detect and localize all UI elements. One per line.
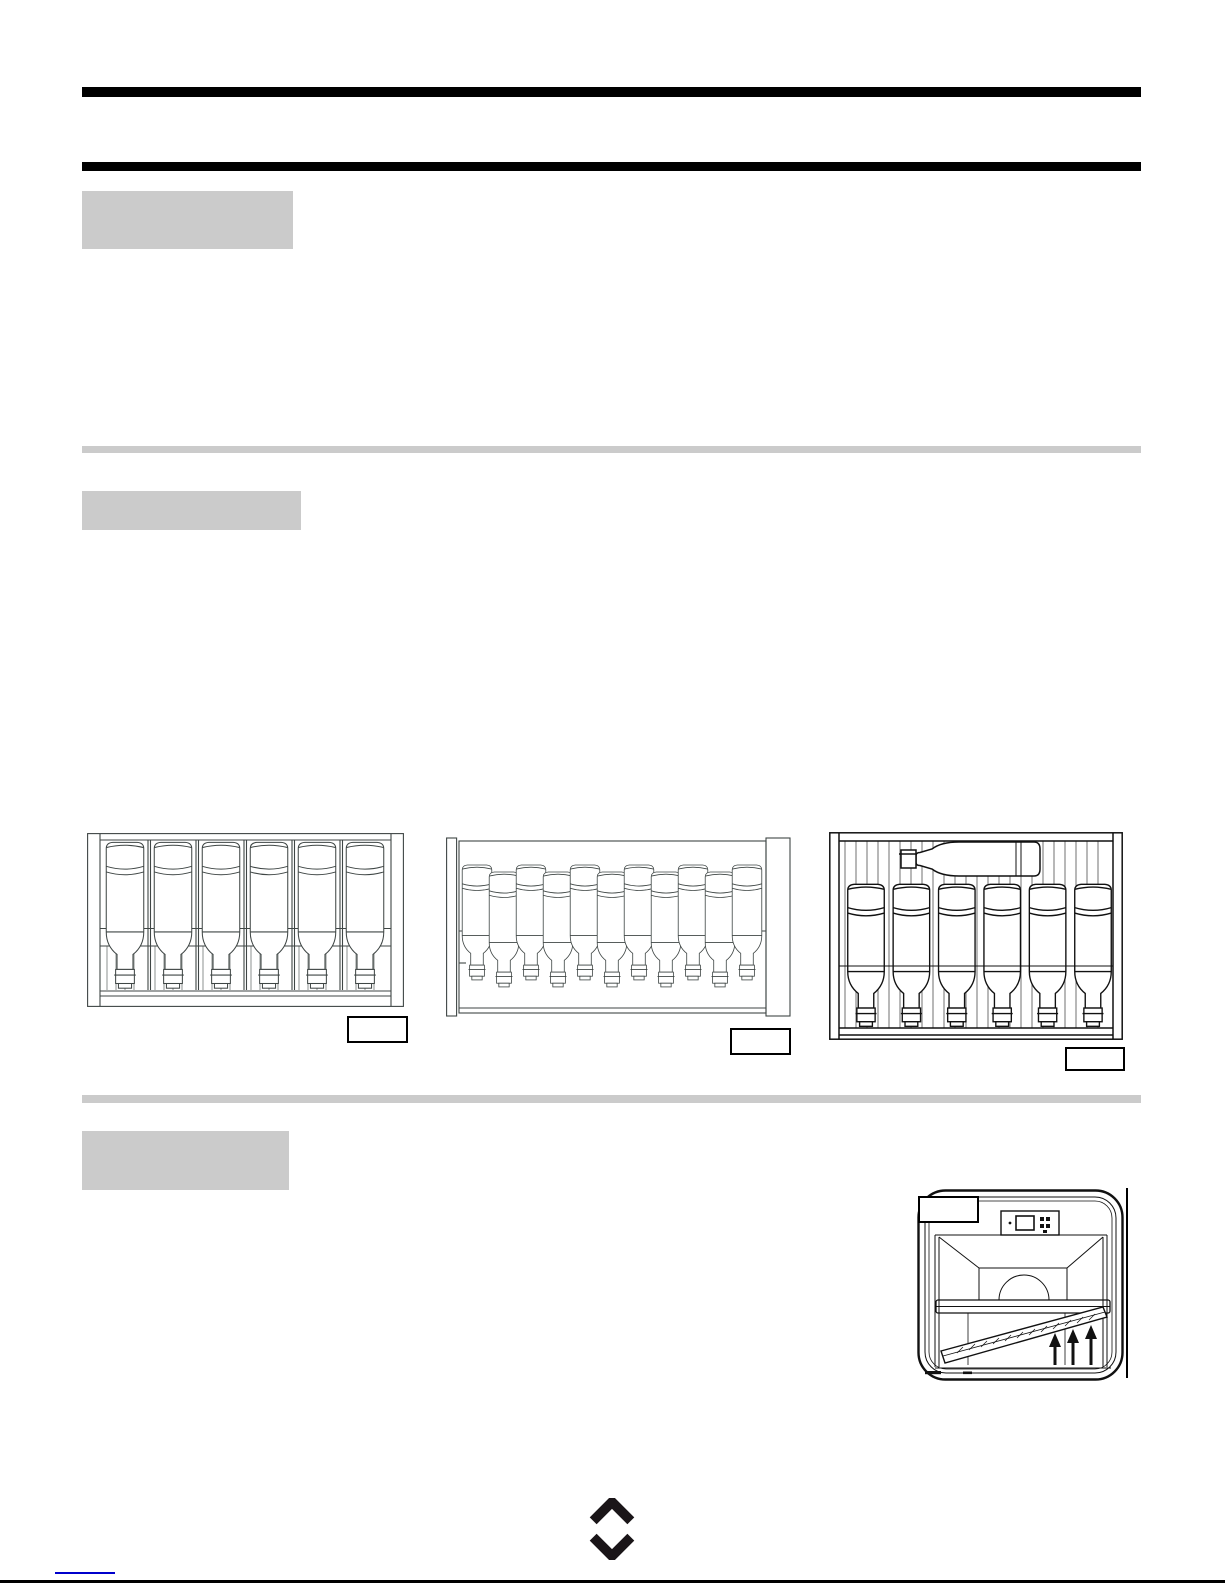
- bottle-icon: [543, 872, 573, 987]
- bottle-icon: [250, 842, 288, 988]
- bottle-icon: [516, 865, 546, 980]
- horizontal-bottle-icon: [899, 842, 1040, 876]
- bottle-icon: [705, 872, 735, 987]
- bottle-icon: [298, 842, 336, 988]
- cooler-figure-label-box: [918, 1196, 979, 1223]
- figure-rack-spaced: [87, 833, 404, 1007]
- keypad-dots-icon: [1040, 1217, 1050, 1233]
- figure-label-box-1: [347, 1016, 408, 1043]
- bottle-icon: [732, 865, 762, 980]
- section-heading-block-1: [82, 191, 293, 249]
- tilted-shelf: [941, 1307, 1107, 1363]
- section-rule: [82, 162, 1141, 171]
- bottle-icon: [678, 865, 708, 980]
- up-arrow-icon: [1049, 1333, 1061, 1365]
- bottle-icon: [1029, 884, 1066, 1026]
- door-edge-line: [1126, 1188, 1128, 1378]
- figure-label-box-3: [1065, 1047, 1125, 1071]
- bottle-icon: [624, 865, 654, 980]
- separator-rule-2: [82, 1095, 1141, 1103]
- bottle-icon: [893, 884, 930, 1026]
- bottle-icon: [154, 842, 192, 988]
- figure-label-box-2: [730, 1028, 791, 1055]
- top-rule: [82, 87, 1141, 97]
- fan-dome: [999, 1275, 1049, 1300]
- bottle-icon: [597, 872, 627, 987]
- bottom-rule: [0, 1580, 1225, 1583]
- bottle-icon: [462, 865, 492, 980]
- shelf: [936, 1300, 1110, 1313]
- up-arrow-icon: [1067, 1329, 1079, 1365]
- manual-page: [0, 0, 1225, 1585]
- up-arrow-icon: [1085, 1325, 1097, 1365]
- bottle-icon: [202, 842, 240, 988]
- bottle-icon: [1075, 884, 1112, 1026]
- bottle-icon: [106, 842, 144, 988]
- bottle-icon: [346, 842, 384, 988]
- footer-link-underline[interactable]: [55, 1572, 115, 1574]
- bottle-icon: [570, 865, 600, 980]
- separator-rule-1: [82, 446, 1141, 453]
- section-heading-block-3: [82, 1131, 289, 1190]
- section-heading-block-2: [82, 491, 301, 530]
- figure-rack-horizontal-bottle: [829, 832, 1123, 1040]
- bottle-icon: [984, 884, 1021, 1026]
- figure-rack-dense: [446, 832, 791, 1022]
- bottle-icon: [489, 872, 519, 987]
- bottle-icon: [651, 872, 681, 987]
- bottle-icon: [848, 884, 885, 1026]
- brand-logo-icon: [570, 1498, 655, 1560]
- control-panel: [1001, 1211, 1059, 1235]
